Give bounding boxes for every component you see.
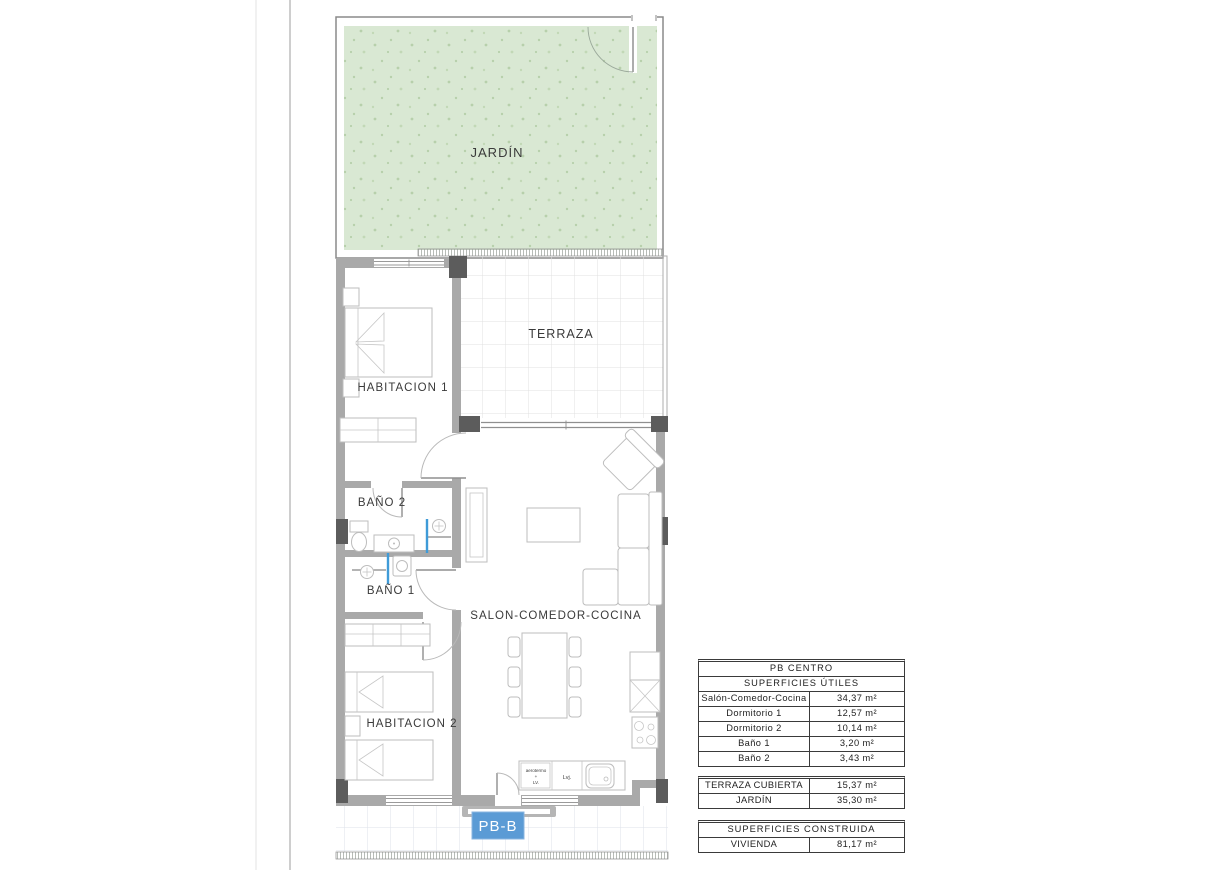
label-habitacion1: HABITACION 1 (357, 382, 448, 394)
room-salon: aerotermo + LV. Lvj. SALON-COMEDOR-COCIN… (466, 428, 665, 790)
label-aerotermo: aerotermo (526, 768, 547, 773)
kitchen-sink (586, 764, 614, 788)
room-terraza: TERRAZA (461, 256, 667, 430)
table-row: Salón-Comedor-Cocina 34,37 m² (699, 691, 904, 706)
svg-text:+: + (535, 774, 538, 779)
kitchen-column (630, 652, 660, 680)
chaise (583, 569, 618, 605)
floor-plan-page: JARDÍN TERRAZA (0, 0, 1220, 870)
table-subtitle: SUPERFICIES ÚTILES (699, 677, 904, 691)
garden-edge-hatch (418, 249, 663, 256)
dining-set (508, 633, 581, 718)
table-title: PB CENTRO (699, 662, 904, 676)
door-bano1 (416, 570, 456, 610)
table-superficies-construida: SUPERFICIES CONSTRUIDA VIVIENDA 81,17 m² (698, 820, 905, 853)
toilet (350, 521, 368, 532)
chair (569, 667, 581, 687)
label-dishwasher: Lvj. (563, 775, 572, 781)
single-bed (345, 740, 433, 780)
table-superficies-utiles: PB CENTRO SUPERFICIES ÚTILES Salón-Comed… (698, 659, 905, 767)
table-row: Baño 2 3,43 m² (699, 751, 904, 766)
floor-plan-drawing: JARDÍN TERRAZA (0, 0, 1220, 870)
chair (569, 697, 581, 717)
terraza-right-edge (663, 256, 667, 418)
unit-badge-text: PB-B (478, 818, 517, 835)
chair (508, 637, 520, 657)
room-habitacion1: HABITACION 1 (340, 288, 449, 442)
sliding-door (481, 421, 651, 430)
door-entrance (495, 773, 521, 807)
table-row: VIVIENDA 81,17 m² (699, 837, 904, 852)
window-kitchen (522, 796, 578, 805)
nightstand (345, 716, 360, 736)
table-row: Dormitorio 2 10,14 m² (699, 721, 904, 736)
chair (508, 667, 520, 687)
room-bano1: BAÑO 1 (352, 553, 415, 597)
coffee-table (527, 508, 580, 542)
label-bano1: BAÑO 1 (367, 584, 415, 597)
table-row: JARDÍN 35,30 m² (699, 793, 904, 808)
table-row: Baño 1 3,20 m² (699, 736, 904, 751)
sofa (583, 492, 662, 605)
table-row: Dormitorio 1 12,57 m² (699, 706, 904, 721)
table-exterior: TERRAZA CUBIERTA 15,37 m² JARDÍN 35,30 m… (698, 776, 905, 809)
unit-badge: PB-B (472, 812, 524, 839)
room-habitacion2: HABITACION 2 (345, 624, 458, 780)
table-row: TERRAZA CUBIERTA 15,37 m² (699, 779, 904, 793)
label-jardin: JARDÍN (471, 145, 524, 160)
dining-table (522, 633, 567, 718)
wardrobe (345, 624, 430, 646)
room-bano2: BAÑO 2 (350, 496, 451, 553)
nightstand (343, 288, 359, 306)
window-habitacion2 (386, 796, 452, 805)
label-habitacion2: HABITACION 2 (366, 718, 457, 730)
tv-unit (466, 488, 487, 562)
chair (569, 637, 581, 657)
svg-text:LV.: LV. (533, 780, 539, 785)
table-title: SUPERFICIES CONSTRUIDA (699, 823, 904, 837)
door-habitacion1 (421, 433, 466, 478)
window-habitacion1 (374, 259, 444, 267)
room-jardin: JARDÍN (336, 14, 663, 258)
walkway-edge-hatch (336, 852, 668, 859)
label-bano2: BAÑO 2 (358, 496, 406, 509)
single-bed (345, 672, 433, 712)
label-salon: SALON-COMEDOR-COCINA (470, 610, 641, 622)
label-terraza: TERRAZA (528, 327, 593, 341)
armchair (599, 428, 665, 494)
chair (508, 697, 520, 717)
